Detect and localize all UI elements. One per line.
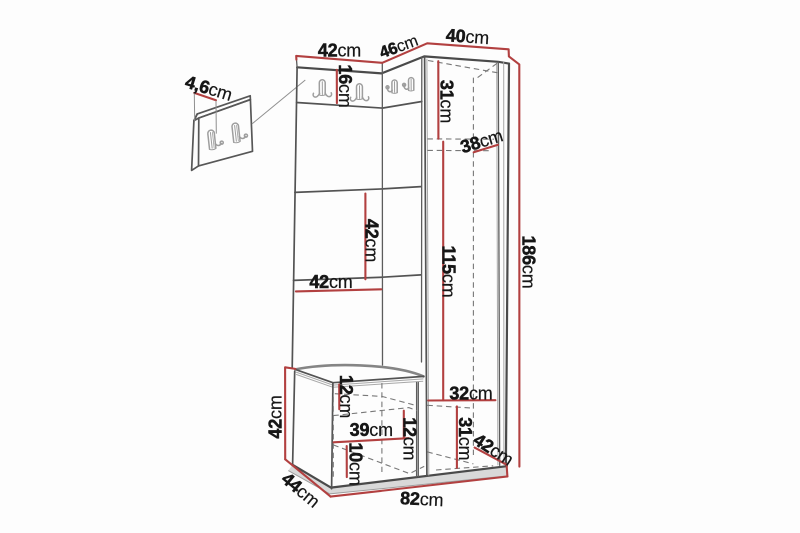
svg-text:186cm: 186cm	[519, 235, 539, 288]
svg-text:82cm: 82cm	[400, 488, 444, 510]
svg-text:31cm: 31cm	[437, 80, 457, 123]
svg-text:12cm: 12cm	[400, 417, 420, 460]
svg-text:16cm: 16cm	[335, 64, 355, 107]
svg-text:39cm: 39cm	[350, 420, 393, 440]
svg-text:31cm: 31cm	[455, 417, 475, 460]
svg-text:42cm: 42cm	[318, 40, 361, 60]
svg-text:12cm: 12cm	[336, 375, 356, 418]
svg-text:40cm: 40cm	[445, 25, 490, 48]
svg-text:10cm: 10cm	[345, 442, 365, 485]
svg-text:42cm: 42cm	[362, 219, 382, 262]
svg-text:115cm: 115cm	[438, 245, 458, 297]
svg-text:42cm: 42cm	[266, 395, 286, 438]
svg-text:42cm: 42cm	[309, 272, 352, 292]
svg-text:32cm: 32cm	[449, 384, 492, 404]
